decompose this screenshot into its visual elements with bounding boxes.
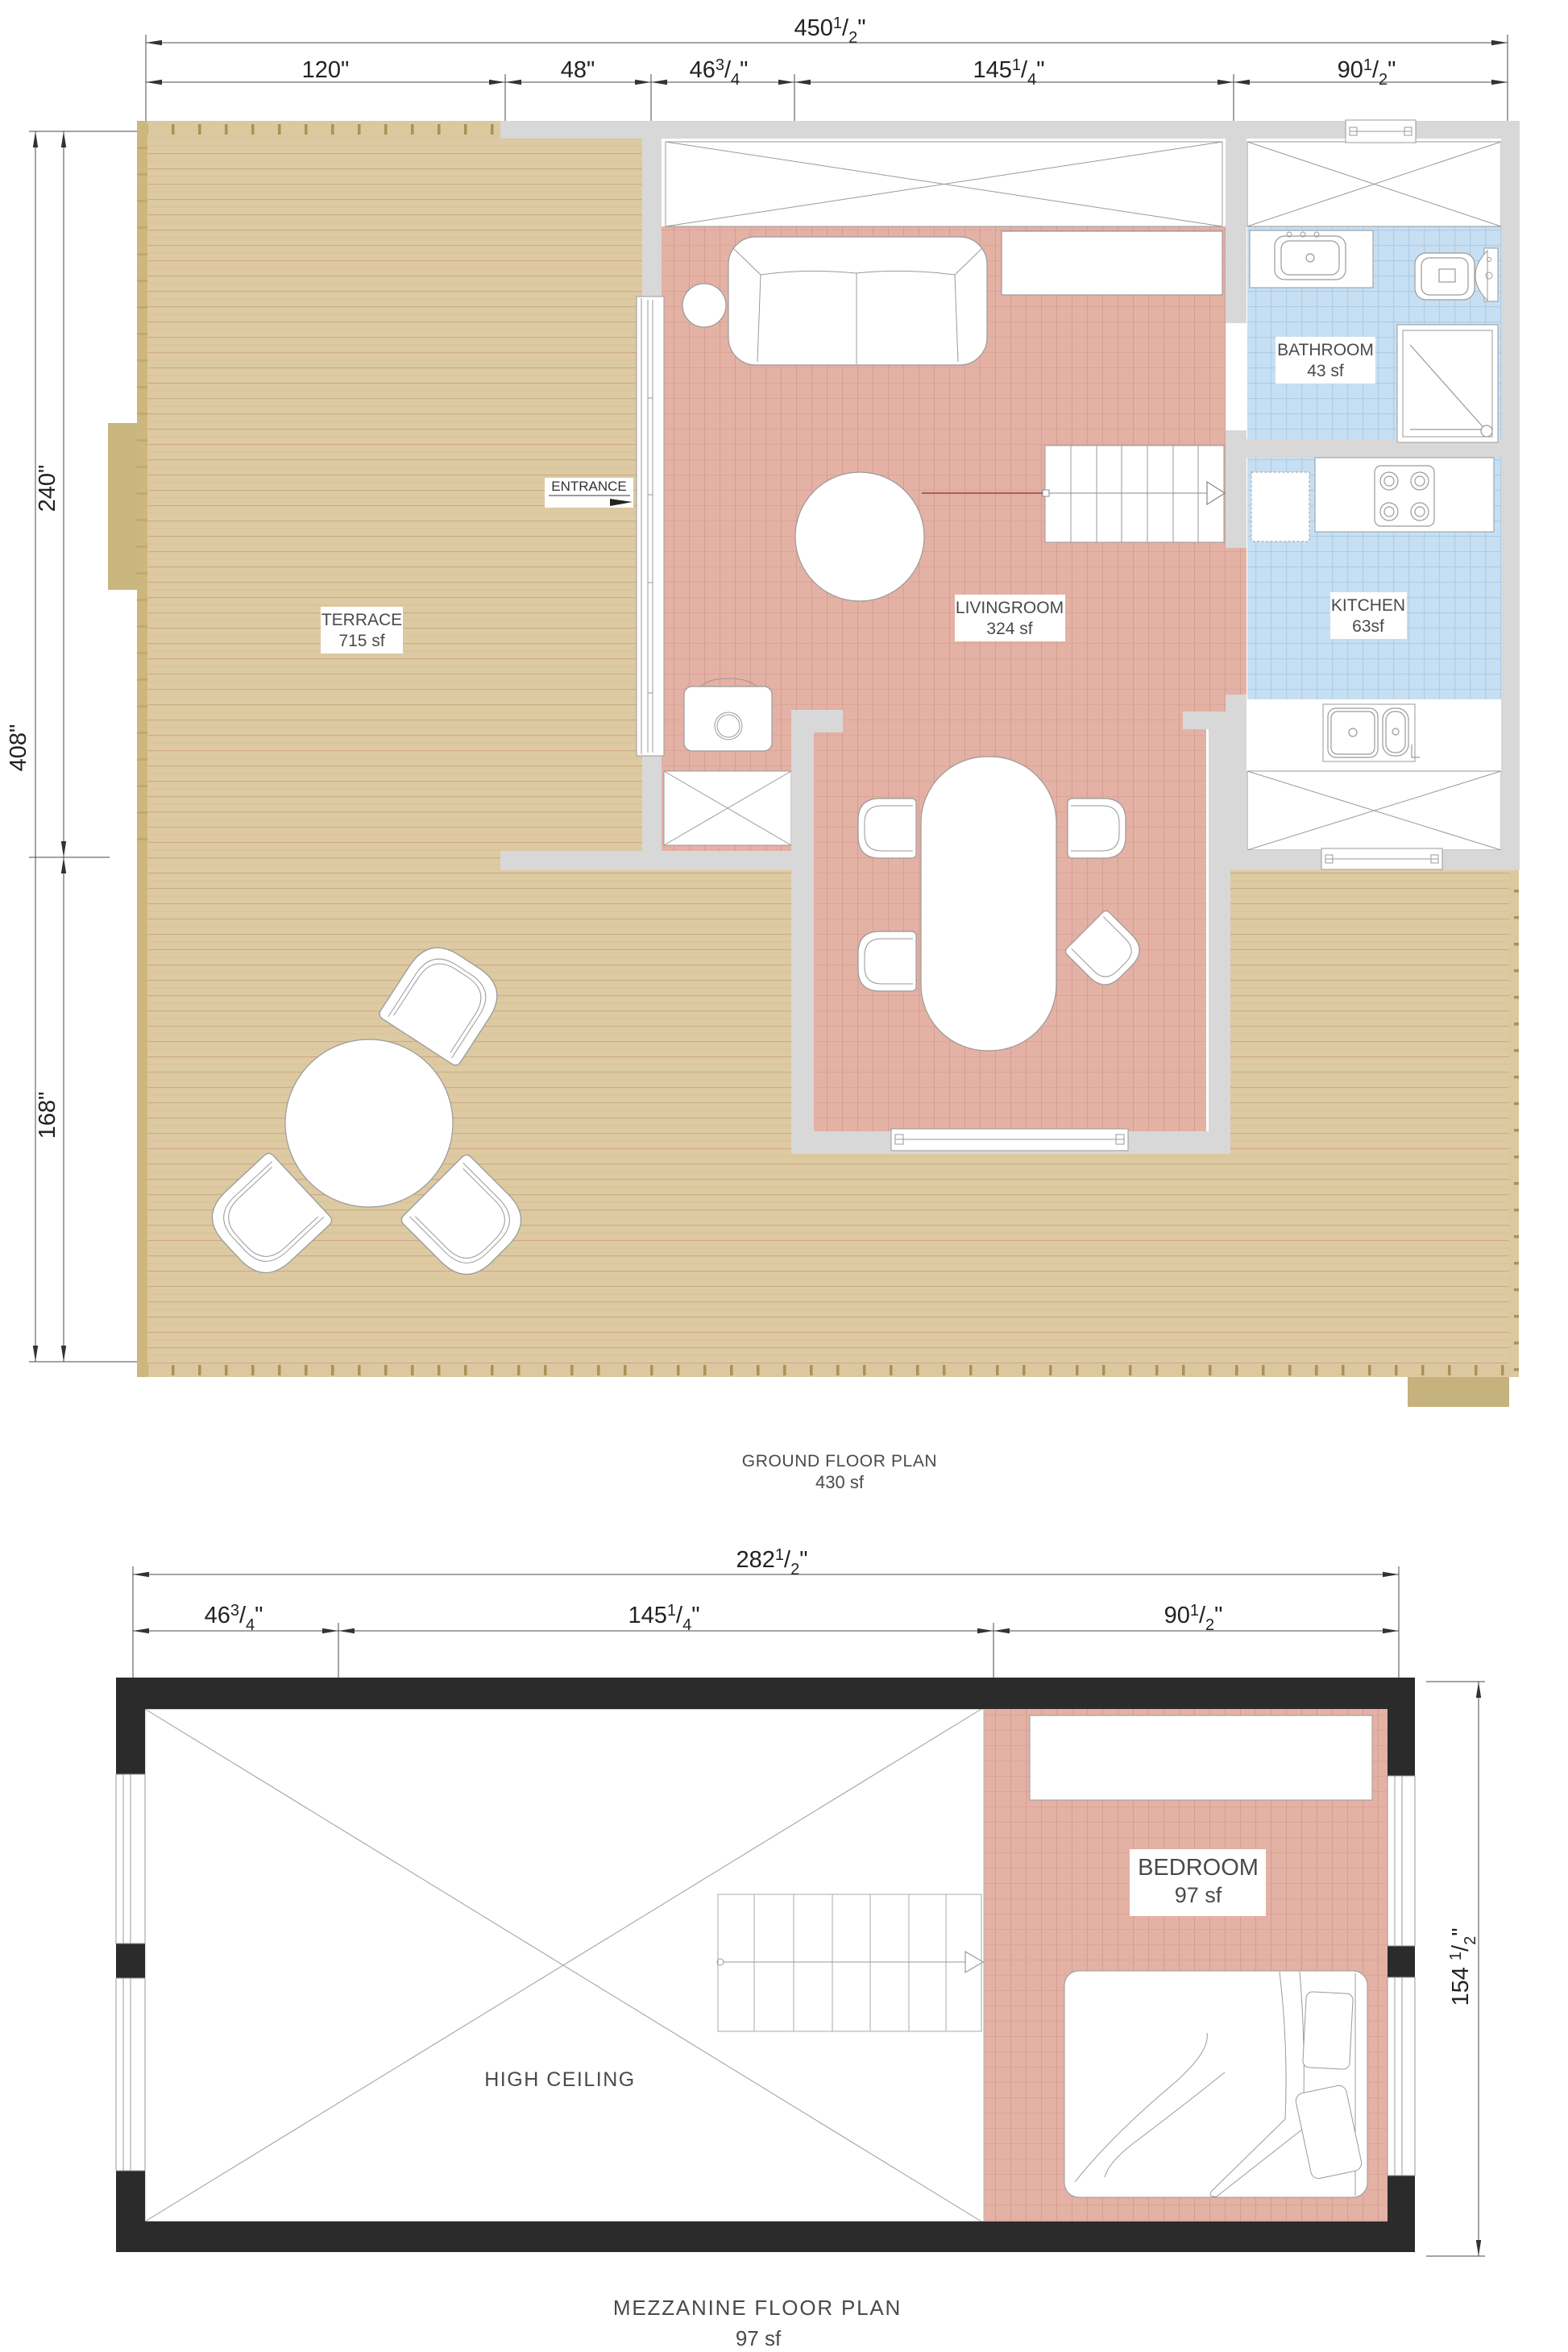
svg-text:324 sf: 324 sf <box>986 620 1032 638</box>
svg-text:BEDROOM: BEDROOM <box>1138 1855 1259 1881</box>
svg-text:168": 168" <box>35 1092 60 1139</box>
svg-text:HIGH CEILING: HIGH CEILING <box>484 2068 635 2091</box>
svg-text:BATHROOM: BATHROOM <box>1277 341 1374 359</box>
svg-text:63sf: 63sf <box>1352 617 1384 636</box>
svg-text:463/4": 463/4" <box>690 56 749 89</box>
svg-text:GROUND FLOOR PLAN: GROUND FLOOR PLAN <box>742 1452 937 1471</box>
svg-text:2821/2": 2821/2" <box>736 1546 808 1578</box>
svg-text:1451/4": 1451/4" <box>973 56 1045 89</box>
svg-text:43 sf: 43 sf <box>1307 362 1344 380</box>
svg-text:97 sf: 97 sf <box>1175 1883 1222 1907</box>
svg-text:901/2": 901/2" <box>1338 56 1396 89</box>
svg-text:KITCHEN: KITCHEN <box>1331 596 1405 615</box>
svg-text:TERRACE: TERRACE <box>321 611 402 629</box>
svg-text:120": 120" <box>302 57 350 83</box>
svg-text:LIVINGROOM: LIVINGROOM <box>956 599 1064 617</box>
svg-text:901/2": 901/2" <box>1164 1602 1223 1634</box>
svg-text:408": 408" <box>6 724 31 772</box>
svg-text:154 1/2": 154 1/2" <box>1447 1927 1479 2006</box>
svg-text:ENTRANCE: ENTRANCE <box>551 479 627 494</box>
svg-text:430 sf: 430 sf <box>815 1472 865 1492</box>
svg-text:4501/2": 4501/2" <box>794 15 866 47</box>
svg-text:1451/4": 1451/4" <box>628 1602 700 1634</box>
svg-text:463/4": 463/4" <box>205 1602 263 1634</box>
svg-text:97 sf: 97 sf <box>736 2326 782 2350</box>
svg-text:48": 48" <box>561 57 595 83</box>
svg-text:MEZZANINE FLOOR PLAN: MEZZANINE FLOOR PLAN <box>613 2296 902 2320</box>
svg-text:240": 240" <box>35 465 60 512</box>
svg-text:715 sf: 715 sf <box>338 632 384 650</box>
